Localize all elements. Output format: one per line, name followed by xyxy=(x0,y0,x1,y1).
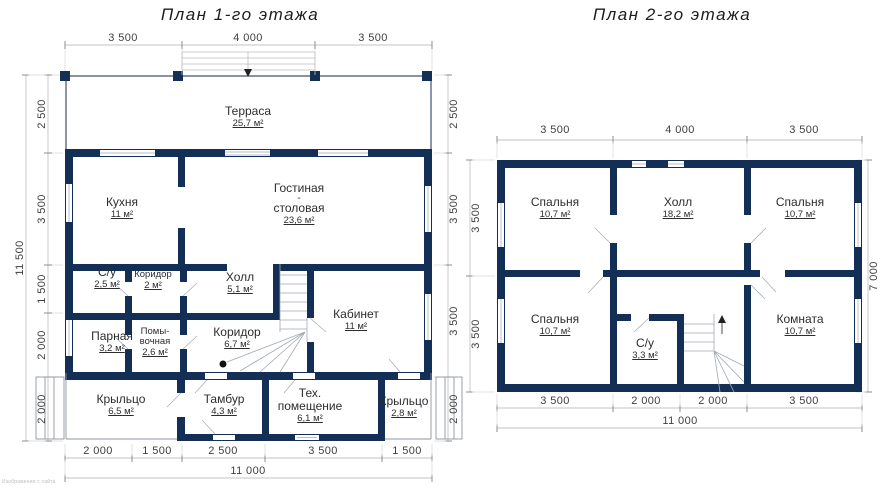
room-label-washroom: Помы- вочная 2,6 м² xyxy=(140,327,171,359)
room-label-bedroom-tl: Спальня 10,7 м² xyxy=(531,196,579,221)
room-label-bedroom-bl: Спальня 10,7 м² xyxy=(531,313,579,338)
room-label-wc-1: С/у 2,5 м² xyxy=(94,266,120,291)
room-label-tech-room: Тех. помещение 6,1 м² xyxy=(278,387,343,425)
floorplan-canvas: План 1-го этажа План 2-го этажа Терраса … xyxy=(0,0,880,492)
room-label-porch-right: Крыльцо 2,8 м² xyxy=(380,395,429,420)
dim-f1-bottom-4: 3 500 xyxy=(308,445,338,457)
dim-f1-top-1: 3 500 xyxy=(108,32,138,44)
watermark: Изображение с сайта xyxy=(2,479,56,485)
room-label-kitchen: Кухня 11 м² xyxy=(106,196,138,221)
dim-f2-top-1: 3 500 xyxy=(540,124,570,136)
room-label-wc-2: С/у 3,3 м² xyxy=(632,337,658,362)
dimension-lines xyxy=(26,45,868,478)
dim-f1-left-1: 2 500 xyxy=(36,99,48,129)
dim-f1-left-total: 11 500 xyxy=(14,240,26,275)
dim-f2-bottom-3: 2 000 xyxy=(698,395,728,407)
room-label-terrace: Терраса 25,7 м² xyxy=(225,105,271,130)
extension-lines xyxy=(28,49,866,476)
dim-f1-bottom-1: 2 000 xyxy=(83,445,113,457)
dim-f1-left-5: 2 000 xyxy=(36,394,48,424)
dim-f1-right-2: 3 500 xyxy=(448,194,460,224)
dim-f2-bottom-2: 2 000 xyxy=(631,395,661,407)
dim-f1-top-3: 3 500 xyxy=(358,32,388,44)
room-label-room: Комната 10,7 м² xyxy=(777,313,824,338)
dim-f2-bottom-total: 11 000 xyxy=(662,415,697,427)
room-label-hall-1: Холл 5,1 м² xyxy=(226,271,254,296)
dim-f1-right-3: 3 500 xyxy=(448,306,460,336)
dim-f1-bottom-total: 11 000 xyxy=(230,465,265,477)
dim-f1-right-1: 2 500 xyxy=(448,99,460,129)
dim-f1-right-4: 2 000 xyxy=(448,394,460,424)
dim-f2-bottom-1: 3 500 xyxy=(540,395,570,407)
floor2-stairs xyxy=(684,314,744,392)
dim-f1-bottom-3: 2 500 xyxy=(208,445,238,457)
room-label-steam-room: Парная 3,2 м² xyxy=(91,330,133,355)
dim-f2-right-total: 7 000 xyxy=(868,261,880,291)
dim-f1-left-4: 2 000 xyxy=(36,330,48,360)
dim-f2-bottom-4: 3 500 xyxy=(789,395,819,407)
dim-f2-top-2: 4 000 xyxy=(665,124,695,136)
dim-f2-left-1: 3 500 xyxy=(470,203,482,233)
dim-f2-left-2: 3 500 xyxy=(470,319,482,349)
room-label-vestibule: Тамбур 4,3 м² xyxy=(204,393,245,418)
dim-f1-left-3: 1 500 xyxy=(36,274,48,304)
floor1-terrace xyxy=(60,52,432,149)
plan-geometry xyxy=(0,0,880,492)
room-label-porch-left: Крыльцо 6,5 м² xyxy=(97,393,146,418)
dim-f1-top-2: 4 000 xyxy=(233,32,263,44)
dim-f1-left-2: 3 500 xyxy=(36,194,48,224)
room-label-bedroom-tr: Спальня 10,7 м² xyxy=(776,196,824,221)
dim-f2-top-3: 3 500 xyxy=(789,124,819,136)
room-label-corridor-small: Коридор 2 м² xyxy=(134,270,172,292)
floor2-title: План 2-го этажа xyxy=(593,5,751,25)
room-label-study: Кабинет 11 м² xyxy=(333,308,379,333)
room-label-corridor-main: Коридор 6,7 м² xyxy=(213,326,260,351)
stair-post xyxy=(220,361,227,368)
room-label-hall-2: Холл 18,2 м² xyxy=(663,196,694,221)
dim-f1-bottom-5: 1 500 xyxy=(392,445,422,457)
floor1-title: План 1-го этажа xyxy=(161,5,319,25)
room-label-living-dining: Гостиная - столовая 23,6 м² xyxy=(274,182,325,227)
dim-f1-bottom-2: 1 500 xyxy=(142,445,172,457)
